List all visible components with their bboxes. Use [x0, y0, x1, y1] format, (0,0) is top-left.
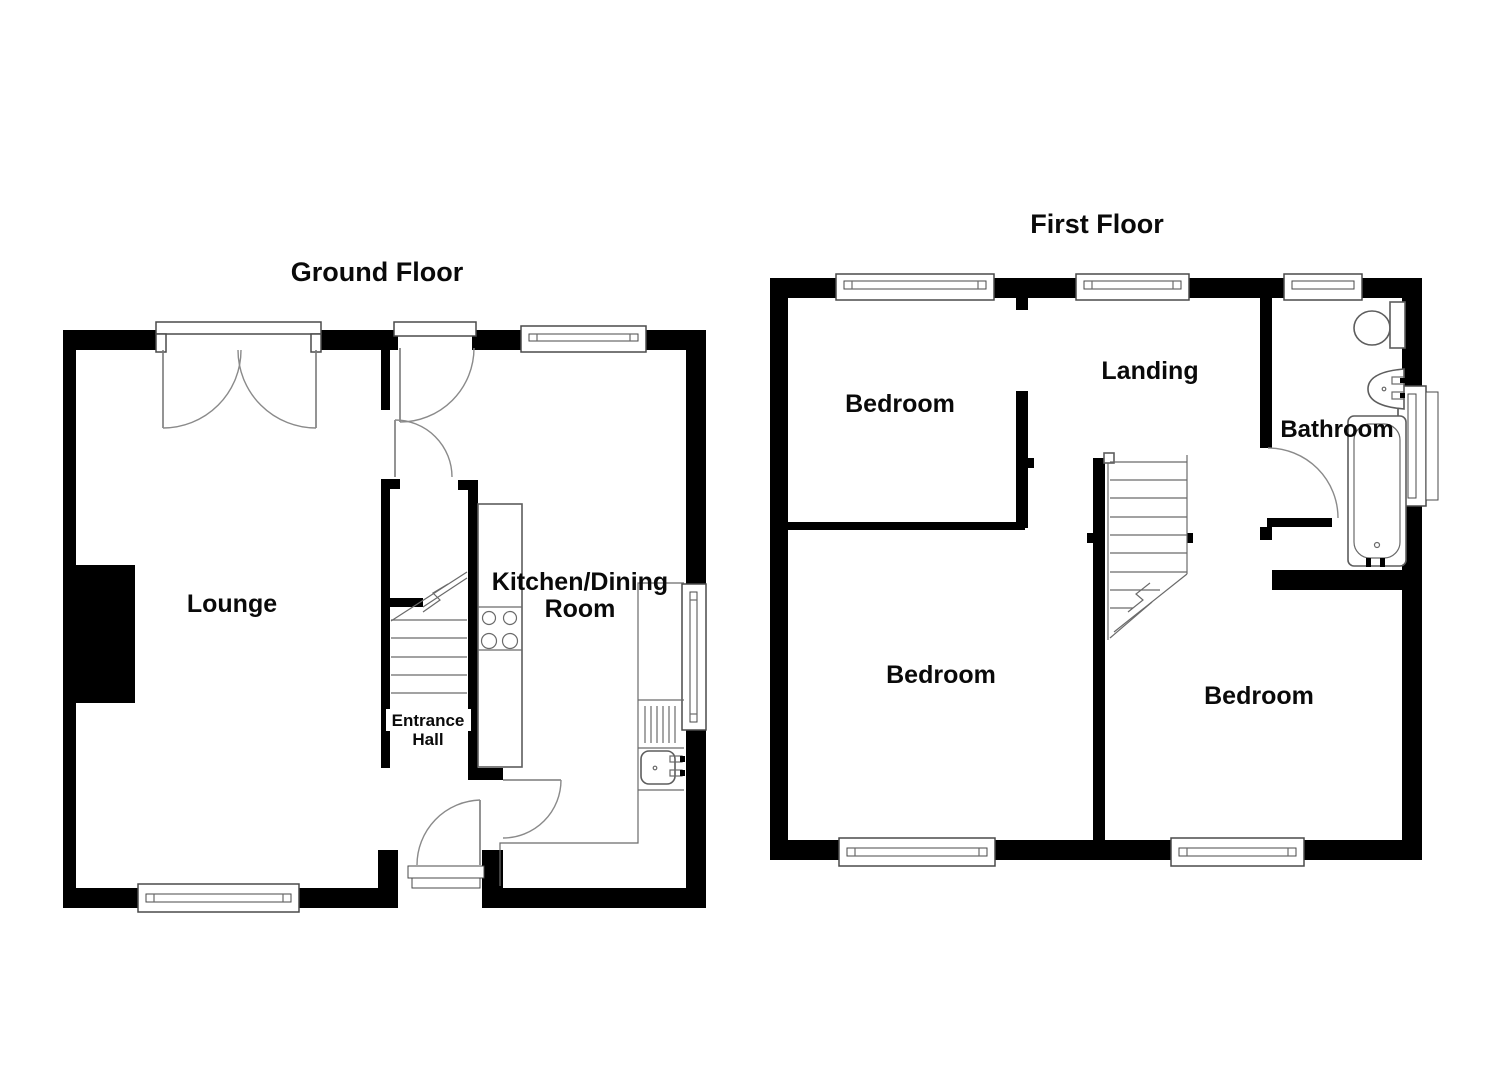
front-door [408, 800, 484, 888]
kitchen-side-window [682, 584, 706, 730]
bedroom-nw-label: Bedroom [845, 390, 955, 418]
back-door [394, 322, 476, 422]
kitchen-label-line1: Kitchen/Dining [492, 568, 668, 596]
hall-label-line2: Hall [412, 730, 443, 749]
staircase-ground [391, 572, 467, 710]
landing-label: Landing [1101, 357, 1198, 385]
hob-counter [478, 504, 522, 767]
floorplan-canvas: Ground Floor Lounge Kitchen/Dining Room … [0, 0, 1485, 1080]
french-doors [156, 322, 321, 428]
bedroom-sw-bottom-window [839, 838, 995, 866]
lounge-bottom-window [138, 884, 299, 912]
kitchen-door [503, 780, 561, 838]
floorplan-page: { "document": { "type": "floorplan", "ba… [0, 0, 1485, 1080]
bathroom-door [1268, 448, 1338, 518]
ground-floor-plan: Ground Floor Lounge Kitchen/Dining Room … [63, 257, 706, 912]
hall-label-line1: Entrance [392, 711, 465, 730]
lounge-door [395, 420, 452, 477]
chimney-breast [63, 565, 135, 703]
bedroom-nw-top-window [836, 274, 994, 300]
first-floor-walls [770, 278, 1422, 860]
kitchen-top-window [521, 326, 646, 352]
toilet-icon [1354, 302, 1405, 348]
first-floor-title: First Floor [1030, 209, 1164, 239]
sink-counter [500, 583, 685, 886]
bathroom-top-window [1284, 274, 1362, 300]
landing-top-window [1076, 274, 1189, 300]
staircase-first [1104, 453, 1187, 640]
ground-floor-title: Ground Floor [291, 257, 464, 287]
bedroom-sw-label: Bedroom [886, 661, 996, 689]
bathroom-label: Bathroom [1280, 416, 1393, 443]
first-floor-plan: First Floor Bedroom Landing Bathroom Bed… [770, 209, 1438, 866]
kitchen-label-line2: Room [545, 595, 616, 623]
kitchen-sink-icon [641, 751, 685, 784]
bedroom-se-label: Bedroom [1204, 682, 1314, 710]
wash-basin-icon [1368, 369, 1405, 409]
drainer-icon [645, 706, 675, 743]
lounge-label: Lounge [187, 590, 277, 618]
bedroom-se-bottom-window [1171, 838, 1304, 866]
